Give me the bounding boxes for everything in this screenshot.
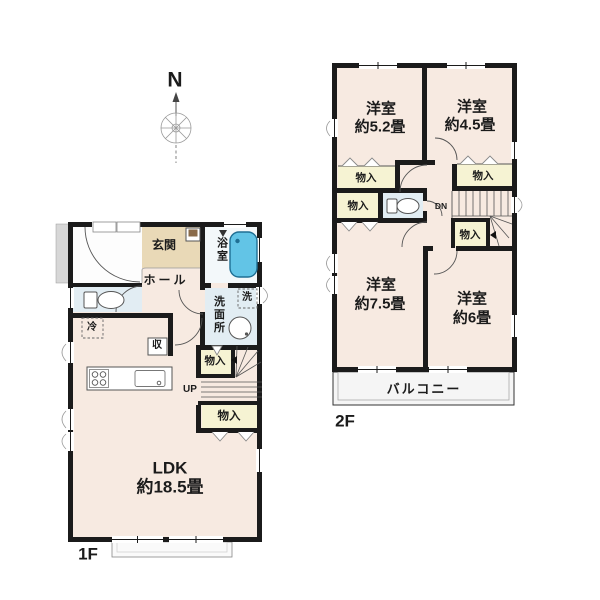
- floorplan-drawing: [0, 0, 600, 600]
- kitchen-counter: [87, 367, 172, 390]
- storage-label: 収: [152, 341, 162, 351]
- bedroom-nw-name: 洋室: [366, 102, 396, 117]
- closet-label-2f-a: 物入: [356, 173, 377, 184]
- floor2-plan: [327, 62, 523, 405]
- washroom-label: 洗面所: [213, 296, 224, 335]
- hall-label: ホール: [143, 274, 188, 286]
- floor2-label: 2F: [335, 413, 355, 430]
- bathtub-icon: [230, 232, 257, 277]
- closet-label-2f-b: 物入: [348, 201, 369, 212]
- closet-label-1f-b: 物入: [218, 411, 241, 423]
- bath-label: 浴室: [216, 237, 227, 263]
- balcony-label: バルコニー: [387, 383, 462, 396]
- bedroom-se-name: 洋室: [457, 292, 487, 307]
- floorplan-page: N 1F 玄関 ホール 浴室 洗面所 洗 冷 収 物入 物入 UP LDK 約1…: [0, 0, 600, 600]
- closet-label-2f-c: 物入: [473, 171, 494, 182]
- compass-north-label: N: [167, 70, 182, 91]
- terrace-step: [112, 542, 232, 557]
- washer-label: 洗: [242, 293, 252, 303]
- bedroom-sw-name: 洋室: [366, 278, 396, 293]
- toilet-icon: [84, 292, 124, 309]
- ldk-size-label: 約18.5畳: [136, 479, 203, 496]
- closet-label-2f-d: 物入: [460, 230, 481, 241]
- bedroom-se-size: 約6畳: [453, 311, 491, 326]
- compass-icon: [161, 92, 191, 163]
- stairs-up-label: UP: [183, 385, 197, 395]
- bedroom-nw-size: 約5.2畳: [355, 120, 406, 135]
- floor1-plan: [56, 221, 268, 557]
- bedroom-ne-name: 洋室: [457, 100, 487, 115]
- shoe-cabinet: [186, 228, 200, 241]
- closet-label-1f-a: 物入: [205, 356, 226, 367]
- stairs-dn-label: DN: [435, 202, 447, 211]
- entrance-label: 玄関: [152, 239, 176, 251]
- toilet-2f-icon: [387, 199, 419, 214]
- floor1-label: 1F: [78, 546, 98, 563]
- fridge-label: 冷: [87, 323, 97, 333]
- bedroom-ne-size: 約4.5畳: [445, 118, 496, 133]
- ldk-name-label: LDK: [153, 460, 188, 477]
- bedroom-sw-size: 約7.5畳: [355, 297, 406, 312]
- vanity-sink-icon: [229, 317, 251, 339]
